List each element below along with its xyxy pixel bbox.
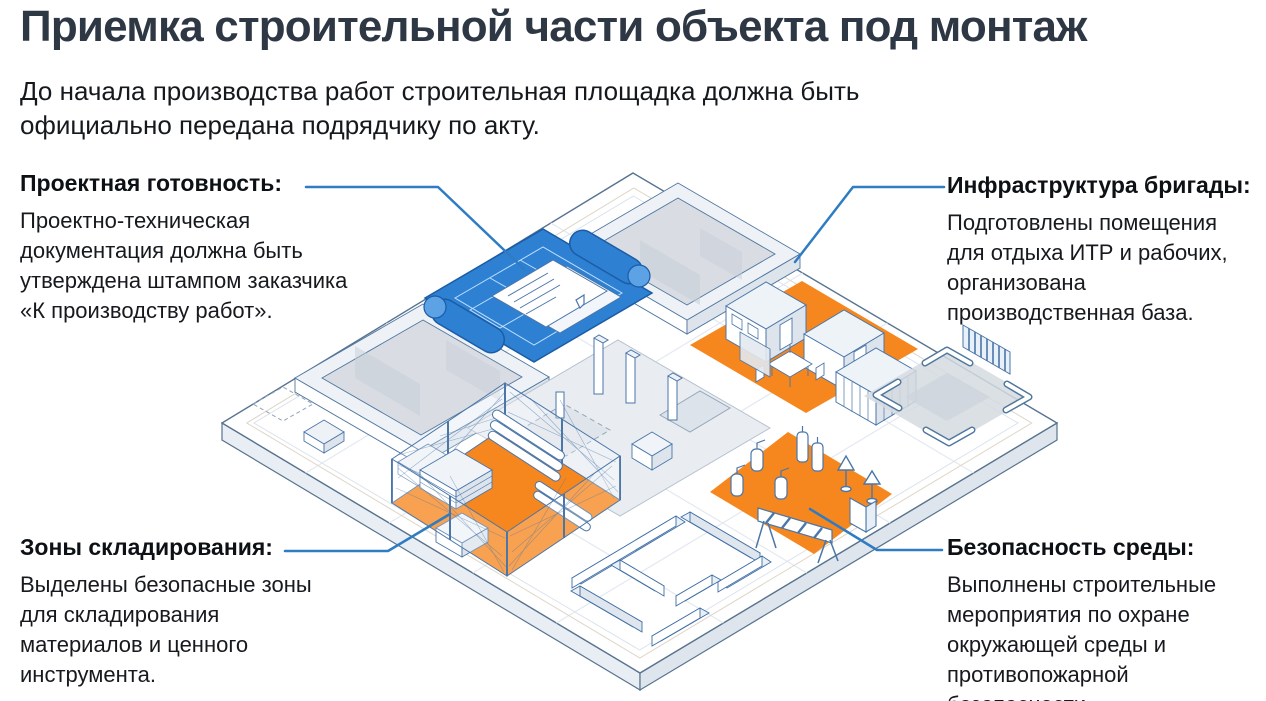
callout-brigade-infrastructure: Инфраструктура бригады: Подготовлены пом…: [947, 172, 1259, 328]
callout-body: Подготовлены помещения для отдыха ИТР и …: [947, 208, 1259, 328]
callout-title: Зоны складирования:: [20, 534, 360, 560]
callout-storage-zones: Зоны складирования: Выделены безопасные …: [20, 534, 360, 690]
callout-title: Инфраструктура бригады:: [947, 172, 1259, 198]
callout-title: Проектная готовность:: [20, 170, 360, 196]
callout-title: Безопасность среды:: [947, 534, 1259, 560]
infographic-page: Приемка строительной части объекта под м…: [0, 0, 1266, 701]
callout-body: Выделены безопасные зоны для складирован…: [20, 570, 360, 690]
callout-environment-safety: Безопасность среды: Выполнены строительн…: [947, 534, 1259, 701]
connector-brigade-infrastructure: [795, 187, 944, 262]
callout-body: Выполнены строительные мероприятия по ох…: [947, 570, 1259, 701]
callout-body: Проектно-техническая документация должна…: [20, 206, 360, 326]
callout-project-readiness: Проектная готовность: Проектно-техническ…: [20, 170, 360, 326]
